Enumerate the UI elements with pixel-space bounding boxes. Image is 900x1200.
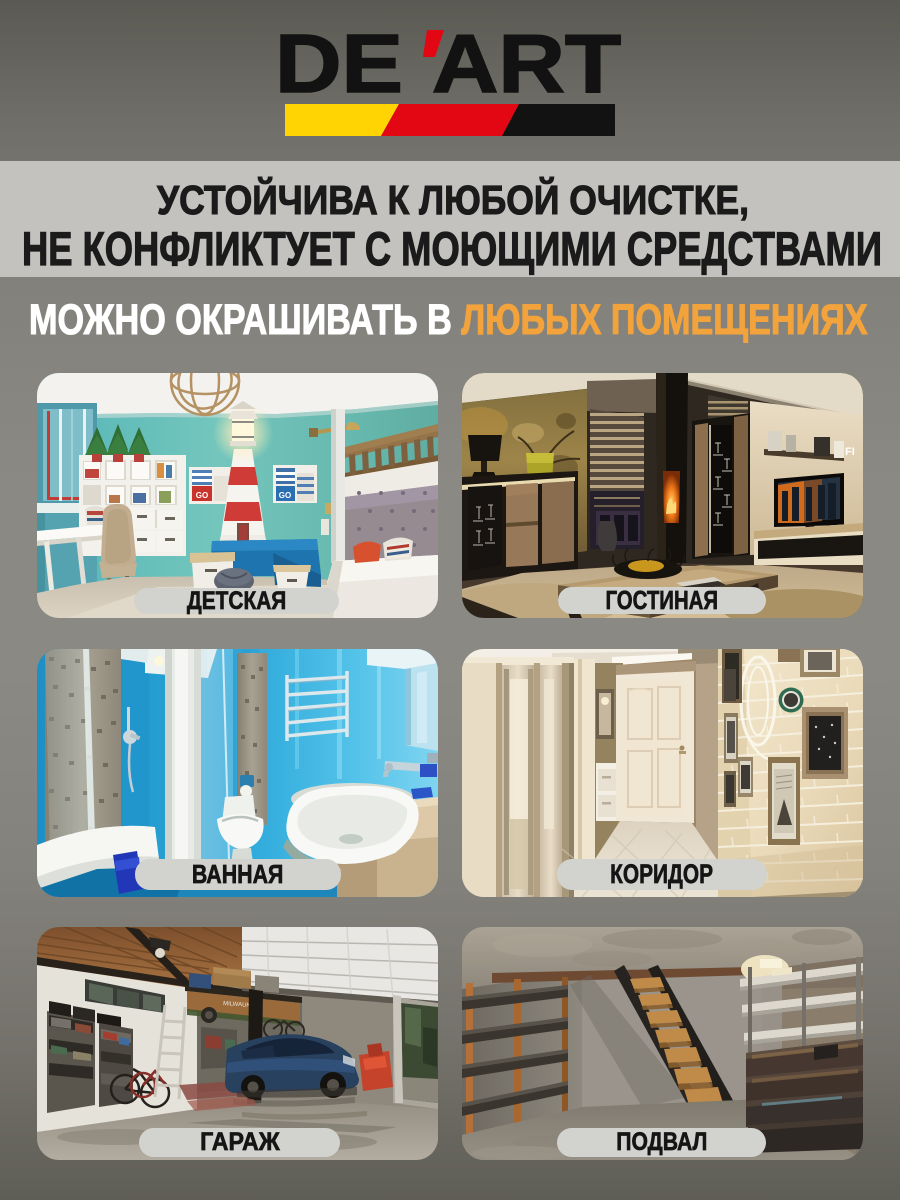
- svg-text:GO: GO: [279, 491, 291, 500]
- svg-text:GO: GO: [196, 491, 208, 500]
- svg-text:FI: FI: [845, 446, 855, 458]
